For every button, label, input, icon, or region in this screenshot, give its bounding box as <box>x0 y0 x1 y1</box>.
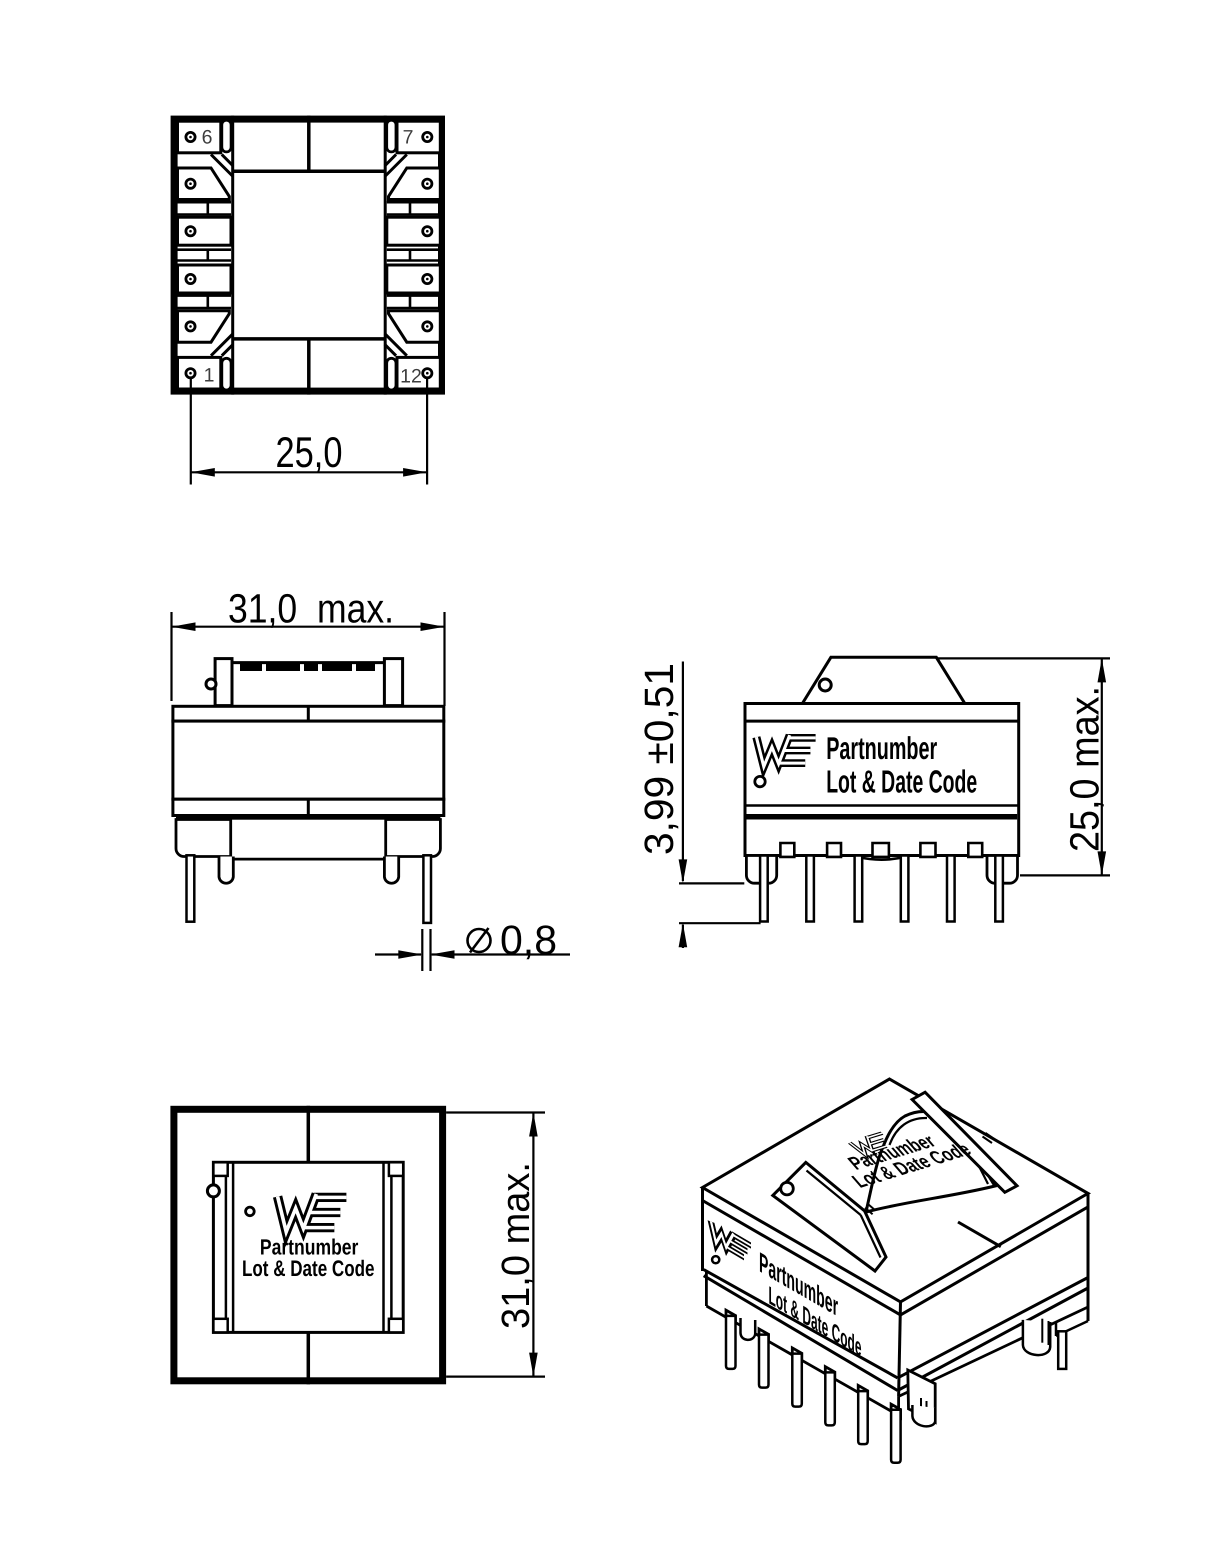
svg-text:6: 6 <box>202 127 213 149</box>
svg-text:Partnumber: Partnumber <box>826 730 937 766</box>
svg-text:0,8: 0,8 <box>500 917 557 963</box>
svg-text:12: 12 <box>400 366 422 388</box>
svg-text:25,0 max.: 25,0 max. <box>1062 686 1108 852</box>
svg-text:31,0 max.: 31,0 max. <box>494 1162 538 1329</box>
svg-text:1: 1 <box>204 365 215 387</box>
svg-text:Lot & Date Code: Lot & Date Code <box>826 763 977 799</box>
svg-text:Lot & Date Code: Lot & Date Code <box>242 1256 375 1281</box>
svg-text:25,0: 25,0 <box>276 429 343 477</box>
svg-text:31,0 max.: 31,0 max. <box>228 586 394 632</box>
svg-text:7: 7 <box>403 127 414 149</box>
svg-text:3,99 ±0,51: 3,99 ±0,51 <box>636 663 682 855</box>
